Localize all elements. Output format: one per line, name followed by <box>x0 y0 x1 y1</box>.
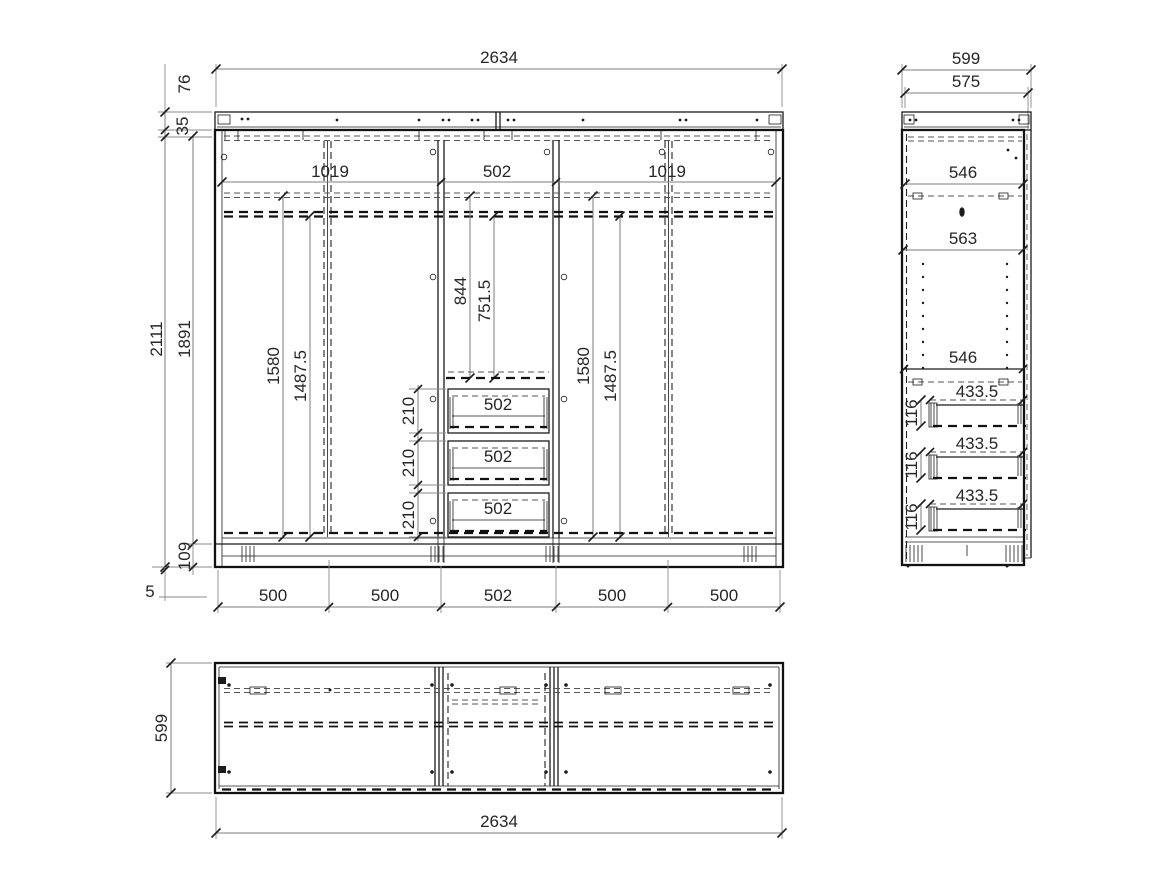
front-rails <box>224 193 774 217</box>
dim-front-height-total: 2111 <box>147 321 166 356</box>
dim-front-section-3: 1019 <box>648 162 686 181</box>
side-drawer-1: 433.5 116 <box>902 382 1027 427</box>
dim-bay-5: 500 <box>710 586 738 605</box>
dim-drawer-width-3: 502 <box>484 499 512 518</box>
dim-bay-3: 502 <box>484 586 512 605</box>
dim-side-drawer-depth-3: 433.5 <box>956 486 999 505</box>
side-drawer-2: 433.5 116 <box>902 434 1027 479</box>
dim-front-width-total: 2634 <box>480 48 518 67</box>
front-drawer-1: 502 <box>448 389 549 433</box>
dim-side-depth-shelf: 546 <box>949 348 977 367</box>
dim-side-drawer-depth-2: 433.5 <box>956 434 999 453</box>
dim-front-top-panel: 35 <box>173 117 192 136</box>
front-partition-left <box>438 140 444 563</box>
dim-side-depth-top: 546 <box>949 163 977 182</box>
dim-side-drawer-height-1: 116 <box>902 399 921 426</box>
front-cornice <box>215 112 783 130</box>
front-door-gap-left <box>324 141 331 537</box>
dim-front-cornice: 76 <box>175 75 194 94</box>
side-connector-row-1 <box>908 193 1022 199</box>
dim-side-drawer-height-2: 116 <box>902 451 921 478</box>
dim-front-right-height-1: 1580 <box>574 347 593 385</box>
dim-side-drawer-depth-1: 433.5 <box>956 382 999 401</box>
dim-front-base-height: 109 <box>175 542 194 570</box>
dim-drawer-width-1: 502 <box>484 395 512 414</box>
cad-canvas: 2634 76 35 2111 1891 109 5 <box>0 0 1174 881</box>
dim-front-left-height-1: 1580 <box>264 347 283 385</box>
front-partition-right <box>553 140 559 563</box>
dim-front-center-height-2: 751.5 <box>475 280 494 323</box>
plan-hidden-lines <box>224 673 774 786</box>
dim-front-height-interior: 1891 <box>175 320 194 358</box>
dim-drawer-pitch-2: 210 <box>399 449 418 477</box>
technical-drawing: 2634 76 35 2111 1891 109 5 <box>0 0 1174 881</box>
dim-plan-depth: 599 <box>152 714 171 742</box>
dim-front-plinth-offset: 5 <box>145 582 154 601</box>
dim-drawer-width-2: 502 <box>484 447 512 466</box>
dim-plan-width: 2634 <box>480 812 518 831</box>
side-drawer-3: 433.5 116 <box>902 486 1027 531</box>
dim-bay-4: 500 <box>598 586 626 605</box>
plan-view: 599 2634 <box>152 663 783 839</box>
dim-side-drawer-height-3: 116 <box>902 503 921 530</box>
dim-front-left-height-2: 1487.5 <box>291 350 310 402</box>
dim-side-depth-total: 599 <box>952 49 980 68</box>
side-base <box>905 537 1024 568</box>
keyhole-mark <box>959 207 964 217</box>
front-door-gap-right <box>665 141 672 537</box>
dim-side-depth-middle: 563 <box>949 229 977 248</box>
dim-side-depth-body: 575 <box>952 72 980 91</box>
front-drawer-stack: 502 502 502 <box>399 372 551 541</box>
dim-front-center-height-1: 844 <box>451 277 470 305</box>
dim-bay-2: 500 <box>371 586 399 605</box>
front-drawer-3: 502 <box>448 493 549 537</box>
plan-connectors <box>218 677 772 774</box>
side-cornice <box>902 112 1031 130</box>
dim-bay-1: 500 <box>259 586 287 605</box>
dim-front-section-1: 1019 <box>311 162 349 181</box>
dim-drawer-pitch-1: 210 <box>399 397 418 425</box>
dim-front-section-2: 502 <box>483 162 511 181</box>
front-view: 2634 76 35 2111 1891 109 5 <box>145 48 783 613</box>
dim-front-right-height-2: 1487.5 <box>601 350 620 402</box>
dim-drawer-pitch-3: 210 <box>399 501 418 529</box>
side-view: 599 575 546 5 <box>900 49 1031 568</box>
front-drawer-2: 502 <box>448 441 549 485</box>
